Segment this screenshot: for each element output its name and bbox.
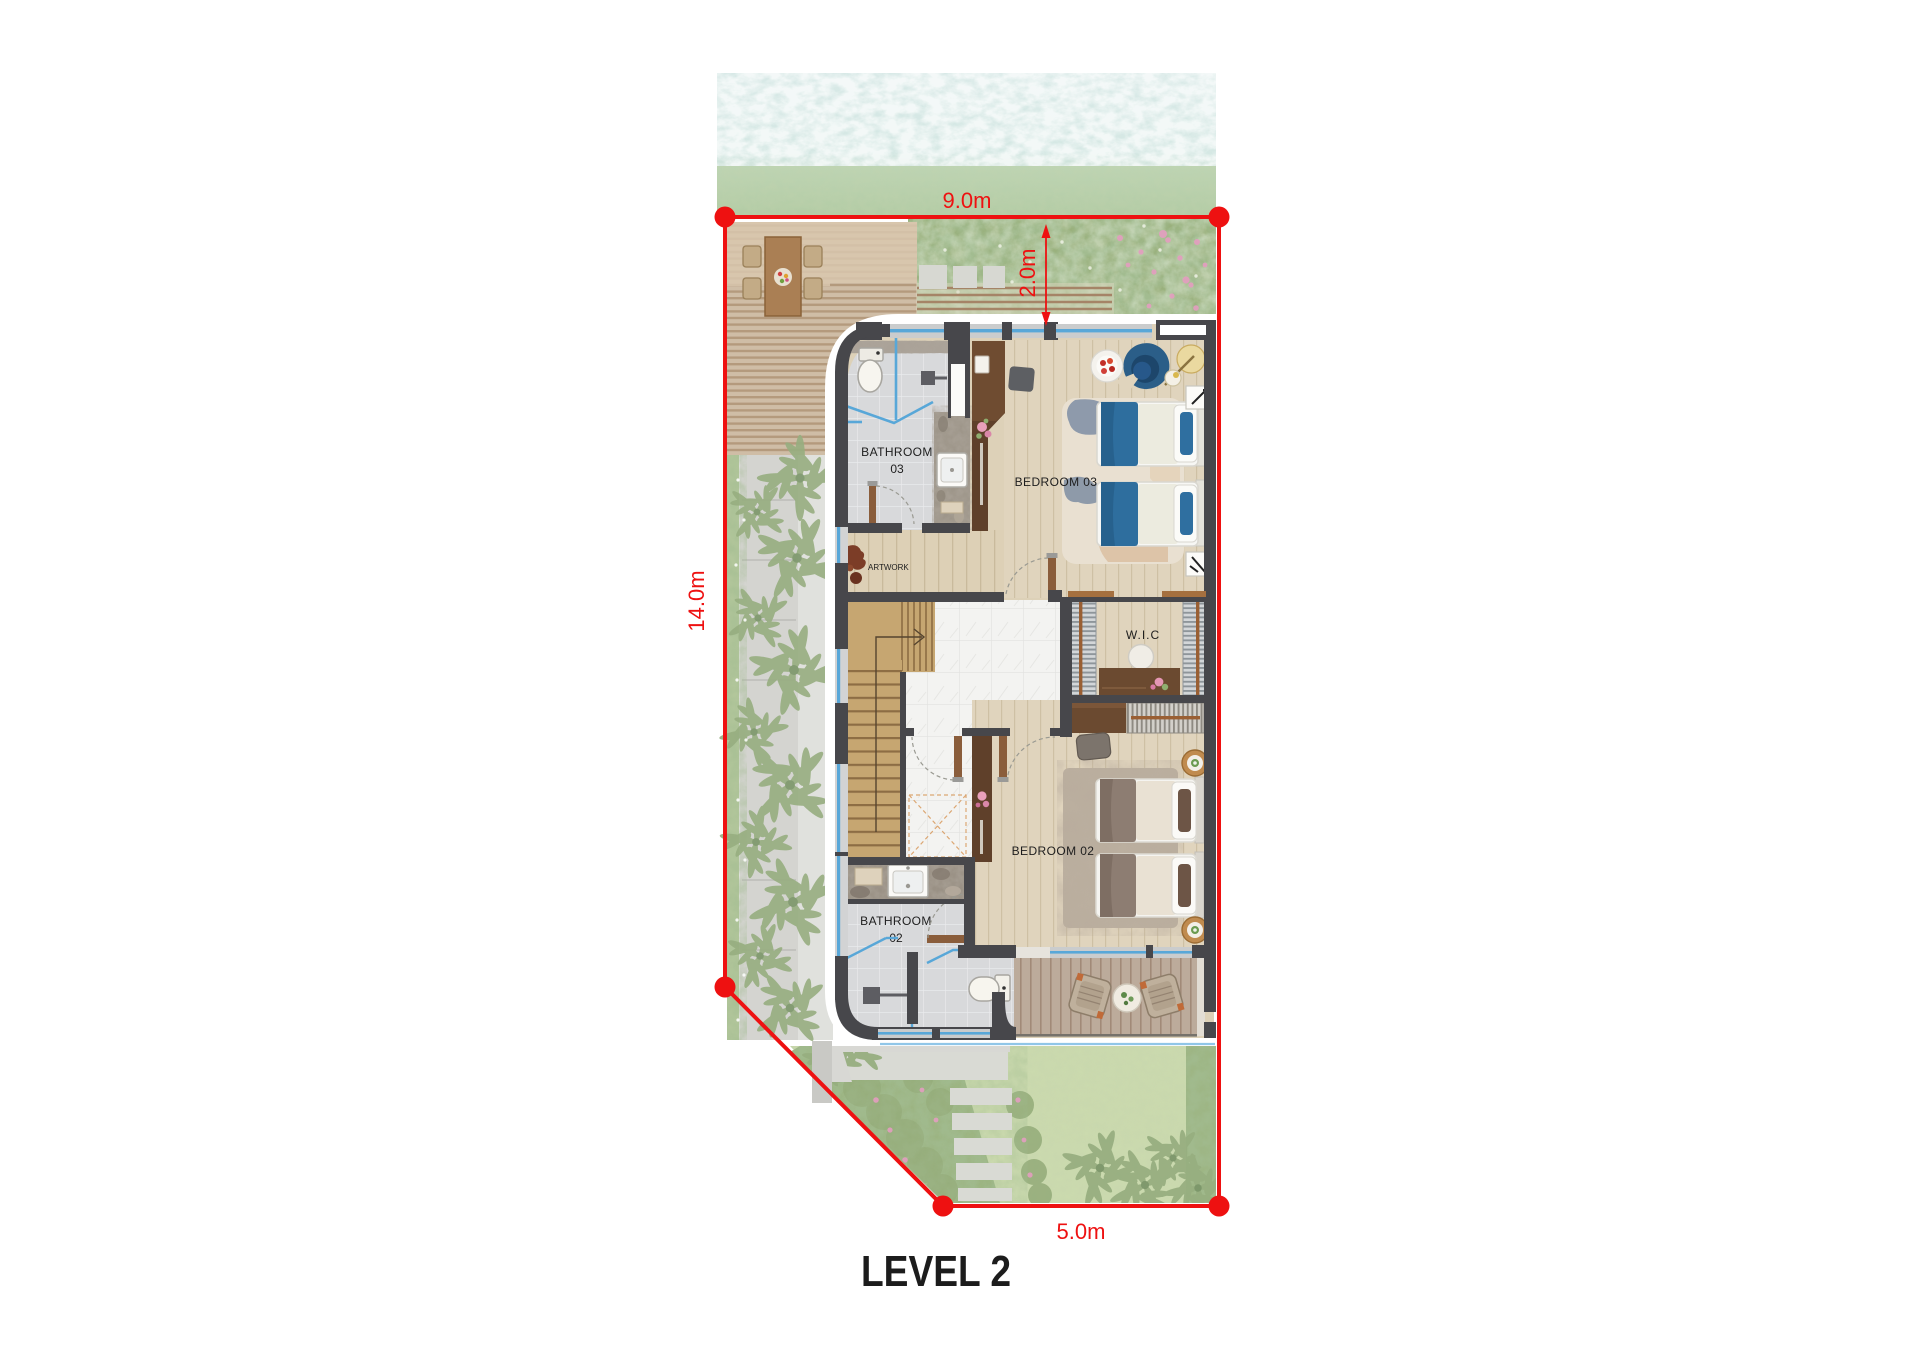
svg-text:2.0m: 2.0m: [1015, 249, 1040, 298]
svg-text:BATHROOM: BATHROOM: [861, 445, 933, 459]
svg-text:5.0m: 5.0m: [1057, 1219, 1106, 1244]
svg-text:W.I.C: W.I.C: [1126, 628, 1160, 642]
svg-text:ARTWORK: ARTWORK: [868, 563, 909, 572]
svg-text:03: 03: [890, 462, 904, 476]
svg-text:9.0m: 9.0m: [943, 188, 992, 213]
svg-text:BATHROOM: BATHROOM: [860, 914, 932, 928]
svg-text:BEDROOM 03: BEDROOM 03: [1015, 475, 1098, 489]
svg-text:14.0m: 14.0m: [684, 570, 709, 631]
svg-text:BEDROOM 02: BEDROOM 02: [1012, 844, 1095, 858]
svg-text:LEVEL 2: LEVEL 2: [861, 1247, 1011, 1296]
